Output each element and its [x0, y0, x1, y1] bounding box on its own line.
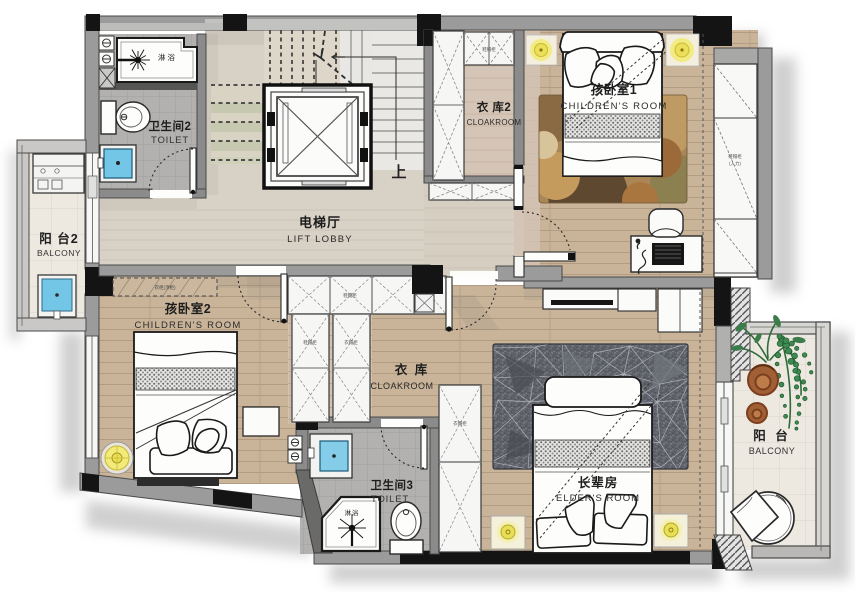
svg-text:CHILDREN'S ROOM: CHILDREN'S ROOM: [561, 101, 668, 112]
svg-text:TOILET: TOILET: [151, 135, 189, 146]
svg-text:阳 台2: 阳 台2: [39, 231, 78, 246]
svg-text:淋浴: 淋浴: [345, 508, 360, 517]
svg-text:衣帽柜: 衣帽柜: [453, 420, 467, 427]
svg-text:阳 台: 阳 台: [753, 428, 790, 443]
svg-text:(入力): (入力): [729, 160, 741, 167]
svg-text:TOILET: TOILET: [371, 494, 409, 505]
svg-text:卫生间3: 卫生间3: [371, 478, 414, 492]
svg-text:CLOAKROOM: CLOAKROOM: [370, 381, 433, 391]
svg-text:鞋帽柜: 鞋帽柜: [303, 339, 317, 346]
svg-text:卫生间2: 卫生间2: [149, 119, 192, 133]
svg-text:CHILDREN'S ROOM: CHILDREN'S ROOM: [135, 320, 242, 331]
svg-text:孩卧室2: 孩卧室2: [165, 301, 211, 316]
svg-text:CLOAKROOM: CLOAKROOM: [467, 118, 522, 127]
svg-text:上: 上: [391, 164, 406, 181]
svg-text:鞋帽柜: 鞋帽柜: [728, 153, 742, 160]
svg-text:BALCONY: BALCONY: [749, 446, 796, 456]
svg-text:衣 库2: 衣 库2: [477, 100, 512, 114]
svg-text:BALCONY: BALCONY: [37, 248, 81, 258]
svg-text:鞋帽柜: 鞋帽柜: [482, 46, 496, 53]
svg-text:衣柜(顶柜): 衣柜(顶柜): [155, 284, 176, 291]
svg-text:电梯厅: 电梯厅: [299, 215, 341, 230]
svg-text:衣帽柜: 衣帽柜: [344, 339, 358, 346]
svg-text:鞋帽柜: 鞋帽柜: [343, 292, 357, 299]
svg-text:衣 库: 衣 库: [395, 362, 429, 377]
svg-text:ELDER'S ROOM: ELDER'S ROOM: [556, 493, 640, 504]
svg-text:LIFT LOBBY: LIFT LOBBY: [287, 234, 353, 245]
svg-text:长辈房: 长辈房: [578, 475, 619, 490]
svg-text:淋浴: 淋浴: [158, 52, 177, 62]
svg-text:孩卧室1: 孩卧室1: [591, 82, 637, 97]
